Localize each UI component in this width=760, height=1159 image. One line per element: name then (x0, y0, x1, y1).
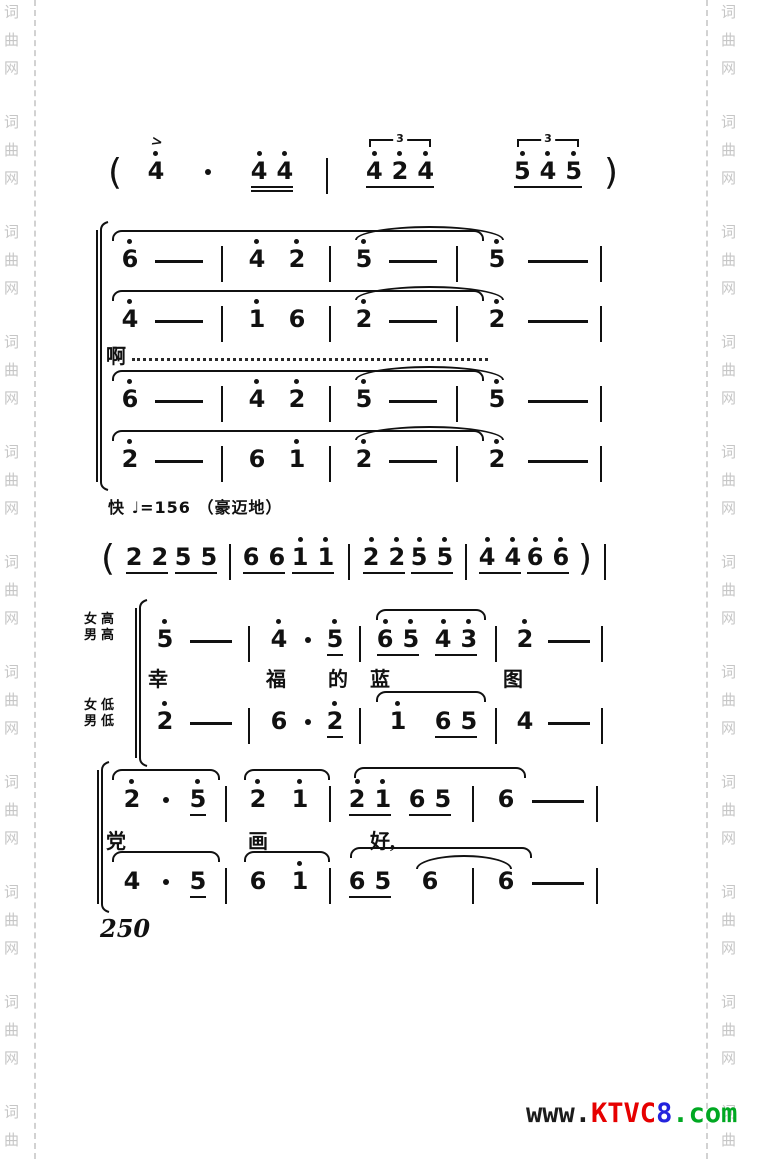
note: 2 (289, 379, 306, 422)
underline-beams (124, 894, 141, 904)
barline-cell (220, 536, 240, 580)
watermark-char: 网 (721, 500, 736, 516)
note: 6 (435, 701, 452, 734)
note-cell: 4 (110, 298, 150, 342)
note: 3 (461, 619, 478, 652)
group-notes: 22 (126, 537, 168, 570)
duration-dash (389, 400, 437, 403)
underline-beams (250, 894, 267, 904)
note-digit: 5 (201, 545, 218, 570)
barline (326, 158, 328, 194)
tie (355, 426, 504, 440)
watermark-char: 网 (4, 390, 19, 406)
barline (456, 446, 458, 482)
watermark-char: 词 (4, 994, 19, 1010)
octave-dot (533, 537, 538, 542)
note-digit: 6 (271, 709, 288, 734)
slur (376, 609, 486, 620)
note: 2 (356, 439, 373, 482)
note-digit: 6 (498, 787, 515, 812)
watermark-dash-left (34, 0, 36, 1159)
duration-dash (528, 260, 587, 263)
note-digit: 1 (292, 787, 309, 812)
octave-dot (417, 537, 422, 542)
note-digit: 2 (327, 709, 344, 734)
underline-beams (271, 734, 288, 744)
beam-group: 44 (479, 537, 521, 580)
note: 5 (489, 379, 506, 422)
barline-cell (594, 238, 608, 282)
group-notes: 424 (366, 151, 434, 184)
watermark-char: 词 (721, 884, 736, 900)
beam-group: 22 (126, 537, 168, 580)
system1-voice3-line: 64255 (110, 378, 608, 422)
barline (329, 786, 331, 822)
dash-cell (526, 778, 590, 822)
watermark-text-group: 词曲网 (4, 664, 19, 736)
note-cell: 5 (180, 778, 216, 822)
watermark-char: 曲 (4, 1132, 19, 1148)
note-digit: 6 (377, 627, 394, 652)
watermark-char: 词 (721, 224, 736, 240)
watermark-char: 曲 (721, 1022, 736, 1038)
barline (600, 386, 602, 422)
note: 6 (377, 619, 394, 652)
watermark-char: 网 (4, 720, 19, 736)
watermark-char: 词 (4, 334, 19, 350)
group-notes: 21 (349, 779, 391, 812)
underline (190, 896, 207, 898)
underline-beams (527, 570, 569, 580)
underline-beams (517, 734, 534, 744)
note-digit: 2 (392, 159, 409, 184)
note: 6 (409, 779, 426, 812)
note-cell: 4 (236, 238, 278, 282)
note-digit: 6 (553, 545, 570, 570)
watermark-char: 网 (4, 940, 19, 956)
barline-cell (456, 536, 476, 580)
note: 6 (250, 861, 267, 904)
watermark-char: 网 (4, 280, 19, 296)
underline-beams (190, 894, 207, 904)
dash-cell (522, 378, 594, 422)
barline-cell (208, 438, 236, 482)
note-cell: 2 (344, 438, 384, 482)
page-number: 250 (100, 914, 150, 943)
intro-phrase-line: (>44434243545) (98, 150, 626, 194)
note-digit: 5 (175, 545, 192, 570)
note-digit: 2 (157, 709, 174, 734)
watermark-char: 网 (721, 720, 736, 736)
duration-dash (528, 400, 587, 403)
note: 1 (318, 537, 335, 570)
beam-group: 22 (363, 537, 405, 580)
voice-label-lower-line1: 女低 (84, 698, 118, 714)
note-digit: 2 (250, 787, 267, 812)
note-digit: 2 (152, 545, 169, 570)
site-watermark-segment: 8 (656, 1098, 672, 1129)
note: 1 (375, 779, 392, 812)
dash-cell (522, 298, 594, 342)
barline (472, 868, 474, 904)
note-cell: 4 (112, 860, 152, 904)
note-cell: 5 (344, 238, 384, 282)
note-cell: 6 (261, 700, 297, 744)
triplet-bracket: 3 (517, 139, 579, 147)
octave-dot (571, 151, 576, 156)
watermark-char: 网 (721, 940, 736, 956)
note: 4 (366, 151, 383, 184)
underline (435, 654, 477, 656)
barline (359, 626, 361, 662)
watermark-char: 网 (4, 610, 19, 626)
note-cell: 1 (278, 438, 316, 482)
slur (112, 769, 220, 780)
note: 1 (292, 861, 309, 904)
underline-beams (148, 184, 165, 194)
underline-beams (498, 812, 515, 822)
note-digit: 5 (437, 545, 454, 570)
note: 2 (363, 537, 380, 570)
note: 2 (349, 779, 366, 812)
note-cell: 4 (507, 700, 543, 744)
underline (409, 814, 451, 816)
watermark-column-left: 词曲网词曲网词曲网词曲网词曲网词曲网词曲网词曲网词曲网词曲网词曲网 (4, 4, 19, 1159)
dash-cell (384, 238, 442, 282)
note: 6 (349, 861, 366, 894)
beam-group: 3424 (366, 151, 434, 194)
dash-cell (543, 618, 595, 662)
dash-cell (543, 700, 595, 744)
barline-cell (338, 536, 360, 580)
beam-group: 43 (435, 619, 477, 662)
group-notes: 55 (175, 537, 217, 570)
note: 4 (540, 151, 557, 184)
barline-cell (316, 238, 344, 282)
underline-beams (243, 570, 285, 580)
barline-cell (442, 438, 472, 482)
watermark-char: 网 (721, 170, 736, 186)
note-cell: 5 (319, 618, 351, 662)
watermark-text-group: 词曲网 (4, 114, 19, 186)
note-digit: 6 (422, 869, 439, 894)
note: 5 (565, 151, 582, 184)
underline-beams (122, 472, 139, 482)
watermark-char: 曲 (4, 582, 19, 598)
watermark-char: 曲 (721, 692, 736, 708)
note: 4 (479, 537, 496, 570)
note-cell: 1 (280, 860, 320, 904)
watermark-char: 曲 (4, 472, 19, 488)
underline-beams (292, 812, 309, 822)
watermark-dash-right (706, 0, 708, 1159)
underline (292, 572, 334, 574)
watermark-char: 网 (721, 60, 736, 76)
dot-cell (297, 700, 319, 744)
barline (495, 626, 497, 662)
note-digit: 5 (403, 627, 420, 652)
underline-beams (356, 412, 373, 422)
underline-beams (157, 734, 174, 744)
barline (329, 306, 331, 342)
octave-dot (394, 537, 399, 542)
barline-cell (316, 298, 344, 342)
note-cell: 5 (344, 378, 384, 422)
octave-dot (332, 701, 337, 706)
system1-voice1-line: 64255 (110, 238, 608, 282)
octave-dot (153, 151, 158, 156)
underline (366, 186, 434, 188)
close-paren: ) (604, 154, 618, 192)
watermark-char: 网 (721, 390, 736, 406)
watermark-char: 网 (721, 830, 736, 846)
underline-beams (489, 272, 506, 282)
watermark-char: 网 (4, 60, 19, 76)
watermark-text-group: 词曲网 (4, 4, 19, 76)
octave-dot (162, 701, 167, 706)
note: 5 (375, 861, 392, 894)
note-digit: 5 (461, 709, 478, 734)
note: 1 (292, 779, 309, 822)
barline (221, 386, 223, 422)
underline-beams (390, 734, 407, 744)
group-notes: 55 (411, 537, 453, 570)
note: 4 (249, 239, 266, 282)
note-digit: 6 (122, 247, 139, 272)
octave-dot (485, 537, 490, 542)
octave-dot (372, 151, 377, 156)
slur (376, 691, 486, 702)
watermark-char: 词 (4, 114, 19, 130)
system-brace (91, 761, 111, 913)
voice-label-lower: 女低 男低 (84, 698, 118, 730)
watermark-text-group: 词曲网 (721, 884, 736, 956)
note-digit: 4 (366, 159, 383, 184)
octave-dot (257, 151, 262, 156)
watermark-char: 曲 (721, 32, 736, 48)
spacer-cell (454, 150, 500, 194)
barline (456, 306, 458, 342)
system2-voice2-line: 2621654 (145, 700, 609, 744)
underline (327, 736, 344, 738)
barline (359, 708, 361, 744)
watermark-text-group: 词曲网 (4, 1104, 19, 1159)
beam-group-cell: 55 (172, 536, 220, 580)
note: 6 (498, 779, 515, 822)
note-digit: 4 (435, 627, 452, 652)
underline (514, 186, 582, 188)
underline-beams (411, 570, 453, 580)
note: 5 (190, 861, 207, 904)
note: 5 (356, 239, 373, 282)
underline (251, 190, 293, 192)
paren-cell: ( (98, 150, 132, 194)
site-watermark-segment: .com (672, 1098, 737, 1129)
barline-cell (208, 238, 236, 282)
note-digit: 6 (250, 869, 267, 894)
note: 2 (122, 439, 139, 482)
underline-beams (349, 812, 391, 822)
watermark-char: 曲 (4, 142, 19, 158)
watermark-char: 词 (4, 4, 19, 20)
note-cell: 6 (236, 438, 278, 482)
note-digit: 4 (540, 159, 557, 184)
interlude-phrase-line: (2255661122554466) (94, 536, 612, 580)
underline (377, 654, 419, 656)
underline (527, 572, 569, 574)
watermark-char: 词 (4, 554, 19, 570)
watermark-char: 词 (4, 224, 19, 240)
underline-beams (249, 272, 266, 282)
note-digit: 2 (289, 387, 306, 412)
underline-beams (489, 412, 506, 422)
note-cell: 6 (486, 778, 526, 822)
note-cell: 2 (112, 778, 152, 822)
underline-beams (249, 472, 266, 482)
beam-group-cell: 65 (427, 700, 485, 744)
note: 5 (175, 537, 192, 570)
note-digit: 1 (249, 307, 266, 332)
note-digit: 2 (289, 247, 306, 272)
note-cell: 2 (344, 298, 384, 342)
note: 4 (517, 701, 534, 744)
note-digit: 4 (479, 545, 496, 570)
watermark-text-group: 词曲网 (721, 994, 736, 1066)
note-cell: 2 (472, 438, 522, 482)
watermark-char: 曲 (721, 912, 736, 928)
note-digit: 5 (489, 247, 506, 272)
beam-group-cell: 21 (340, 778, 400, 822)
watermark-char: 词 (721, 994, 736, 1010)
watermark-text-group: 词曲网 (4, 444, 19, 516)
duration-dash (155, 260, 203, 263)
note-cell: 4 (236, 378, 278, 422)
watermark-char: 词 (4, 774, 19, 790)
underline (411, 572, 453, 574)
triplet-number: 3 (393, 133, 407, 144)
barline (472, 786, 474, 822)
beam-group: 21 (349, 779, 391, 822)
duration-dash (389, 460, 437, 463)
note-cell: 2 (110, 438, 150, 482)
octave-dot (276, 619, 281, 624)
beam-group-cell: 11 (288, 536, 338, 580)
underline-beams (327, 652, 344, 662)
barline-cell (308, 150, 346, 194)
barline (221, 446, 223, 482)
note: 6 (527, 537, 544, 570)
watermark-char: 词 (4, 664, 19, 680)
group-notes: 65 (435, 701, 477, 734)
underline (435, 736, 477, 738)
octave-dot (298, 537, 303, 542)
beam-group: 65 (435, 701, 477, 744)
site-watermark-segment: www. (526, 1098, 591, 1129)
duration-dash (389, 260, 437, 263)
note: 4 (417, 151, 434, 184)
watermark-char: 曲 (721, 142, 736, 158)
watermark-char: 词 (4, 444, 19, 460)
augmentation-dot (305, 637, 311, 643)
lyric-syllable: 幸 (148, 663, 168, 692)
note: 6 (122, 239, 139, 282)
underline-beams (249, 332, 266, 342)
group-notes: 44 (479, 537, 521, 570)
underline-beams (124, 812, 141, 822)
note: 6 (122, 379, 139, 422)
note-cell: 2 (319, 700, 351, 744)
barline (465, 544, 467, 580)
watermark-char: 词 (721, 334, 736, 350)
underline-beams (122, 412, 139, 422)
underline-beams (292, 894, 309, 904)
watermark-char: 曲 (4, 912, 19, 928)
note: 2 (327, 701, 344, 744)
open-paren: ( (108, 154, 122, 192)
note-digit: 6 (243, 545, 260, 570)
lyric-syllable: 蓝 (370, 663, 390, 692)
note-digit: 2 (122, 447, 139, 472)
beam-group-cell: 22 (360, 536, 408, 580)
slur (244, 851, 330, 862)
duration-dash (548, 640, 591, 643)
note-digit: 4 (505, 545, 522, 570)
note-digit: 5 (356, 387, 373, 412)
note-digit: 6 (249, 447, 266, 472)
underline-beams (514, 184, 582, 194)
system-brace (90, 221, 110, 491)
underline-beams (289, 472, 306, 482)
dash-cell (522, 238, 594, 282)
underline-beams (409, 812, 451, 822)
dash-cell (150, 238, 208, 282)
watermark-char: 词 (4, 884, 19, 900)
note: 1 (249, 299, 266, 342)
barline (248, 708, 250, 744)
barline (329, 446, 331, 482)
note: 2 (389, 537, 406, 570)
barline (248, 626, 250, 662)
beam-group: 65 (409, 779, 451, 822)
watermark-text-group: 词曲网 (4, 884, 19, 956)
note: 4 (122, 299, 139, 342)
barline (456, 386, 458, 422)
watermark-char: 曲 (4, 362, 19, 378)
octave-dot (442, 537, 447, 542)
beam-group-cell: 55 (408, 536, 456, 580)
note-digit: 6 (269, 545, 286, 570)
augmentation-dot (305, 719, 311, 725)
watermark-text-group: 词曲网 (721, 4, 736, 76)
note-cell: 1 (236, 298, 278, 342)
barline-cell (595, 618, 609, 662)
augmentation-dot (205, 169, 211, 175)
note-digit: 6 (349, 869, 366, 894)
underline (479, 572, 521, 574)
note-digit: 2 (356, 307, 373, 332)
note-digit: 1 (318, 545, 335, 570)
watermark-text-group: 词曲网 (4, 774, 19, 846)
paren-cell: ) (596, 150, 626, 194)
watermark-char: 词 (721, 444, 736, 460)
duration-dash (528, 320, 587, 323)
watermark-text-group: 词曲网 (4, 994, 19, 1066)
barline (600, 246, 602, 282)
underline-beams (289, 332, 306, 342)
system1-voice2-line: 41622 (110, 298, 608, 342)
watermark-char: 网 (721, 1050, 736, 1066)
system2-voice1-line: 54565432 (145, 618, 609, 662)
